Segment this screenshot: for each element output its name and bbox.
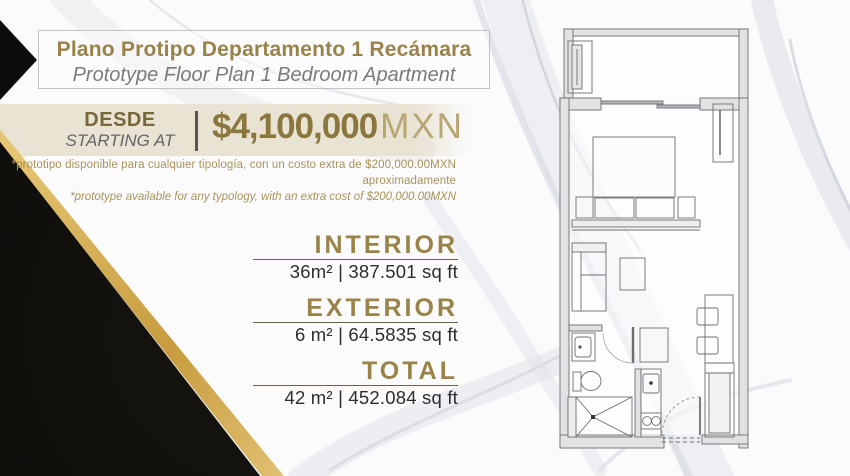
- area-summary: INTERIOR 36m² | 387.501 sq ft EXTERIOR 6…: [253, 232, 458, 421]
- disclaimer-en: *prototype available for any typology, w…: [0, 189, 456, 205]
- marketing-slide: Plano Protipo Departamento 1 Recámara Pr…: [0, 0, 850, 476]
- area-exterior: EXTERIOR 6 m² | 64.5835 sq ft: [253, 295, 458, 347]
- area-total-value: 42 m² | 452.084 sq ft: [253, 386, 458, 410]
- price-line: $4,100,000MXN: [212, 107, 464, 147]
- area-total: TOTAL 42 m² | 452.084 sq ft: [253, 358, 458, 410]
- disclaimer: *prototipo disponible para cualquier tip…: [0, 157, 456, 205]
- floor-plan: [555, 25, 755, 455]
- disclaimer-es: *prototipo disponible para cualquier tip…: [0, 157, 456, 189]
- title-box: Plano Protipo Departamento 1 Recámara Pr…: [38, 30, 490, 89]
- price-currency: MXN: [380, 107, 464, 146]
- price-separator: [195, 111, 198, 151]
- area-interior-label: INTERIOR: [253, 232, 458, 258]
- price-label-es: DESDE: [55, 110, 185, 131]
- area-interior: INTERIOR 36m² | 387.501 sq ft: [253, 232, 458, 284]
- area-exterior-label: EXTERIOR: [253, 295, 458, 321]
- price-amount: $4,100,000: [212, 107, 377, 146]
- price-labels: DESDE STARTING AT: [55, 110, 185, 151]
- page-title: Plano Protipo Departamento 1 Recámara: [39, 37, 489, 63]
- page-subtitle: Prototype Floor Plan 1 Bedroom Apartment: [39, 63, 489, 87]
- price-label-en: STARTING AT: [55, 131, 185, 151]
- closet: [705, 363, 734, 437]
- sliding-door: [601, 101, 700, 108]
- area-exterior-value: 6 m² | 64.5835 sq ft: [253, 323, 458, 347]
- area-interior-value: 36m² | 387.501 sq ft: [253, 260, 458, 284]
- area-total-label: TOTAL: [253, 358, 458, 384]
